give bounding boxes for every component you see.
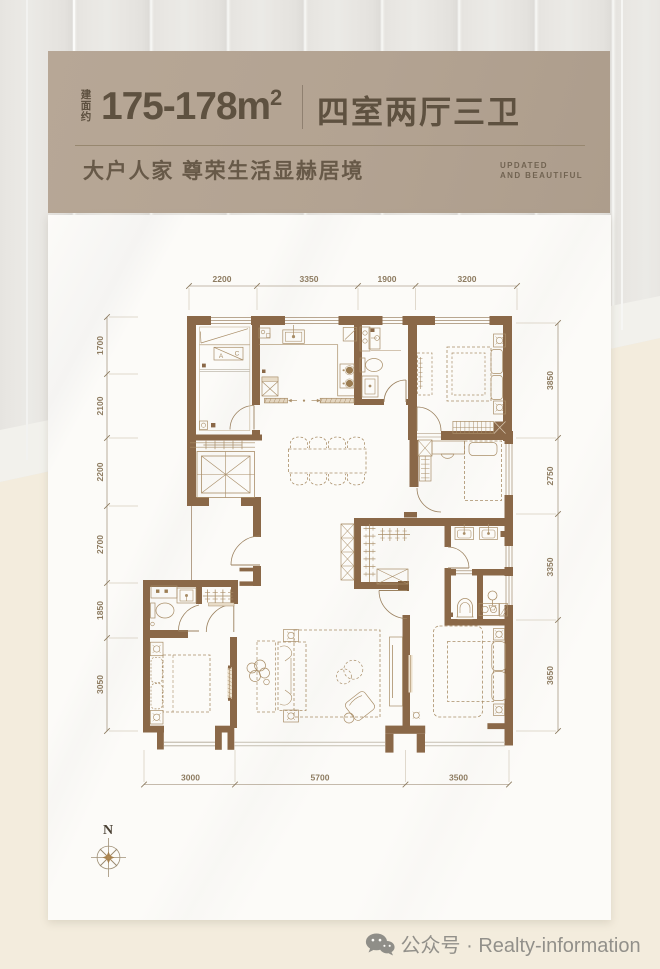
- svg-text:C: C: [235, 351, 240, 358]
- svg-text:A: A: [219, 353, 224, 360]
- svg-text:3850: 3850: [545, 371, 555, 390]
- svg-text:3500: 3500: [449, 773, 468, 783]
- svg-text:3050: 3050: [95, 675, 105, 694]
- svg-text:N: N: [103, 823, 113, 838]
- svg-text:3350: 3350: [545, 557, 555, 576]
- svg-text:2100: 2100: [95, 396, 105, 415]
- svg-text:2200: 2200: [95, 462, 105, 481]
- svg-text:1850: 1850: [95, 601, 105, 620]
- svg-text:2750: 2750: [545, 466, 555, 485]
- svg-text:5700: 5700: [311, 773, 330, 783]
- svg-text:1900: 1900: [378, 274, 397, 284]
- svg-text:3000: 3000: [181, 773, 200, 783]
- svg-text:2700: 2700: [95, 535, 105, 554]
- svg-text:2200: 2200: [213, 274, 232, 284]
- svg-text:1700: 1700: [95, 336, 105, 355]
- svg-text:3350: 3350: [300, 274, 319, 284]
- svg-text:3200: 3200: [458, 274, 477, 284]
- svg-text:3650: 3650: [545, 666, 555, 685]
